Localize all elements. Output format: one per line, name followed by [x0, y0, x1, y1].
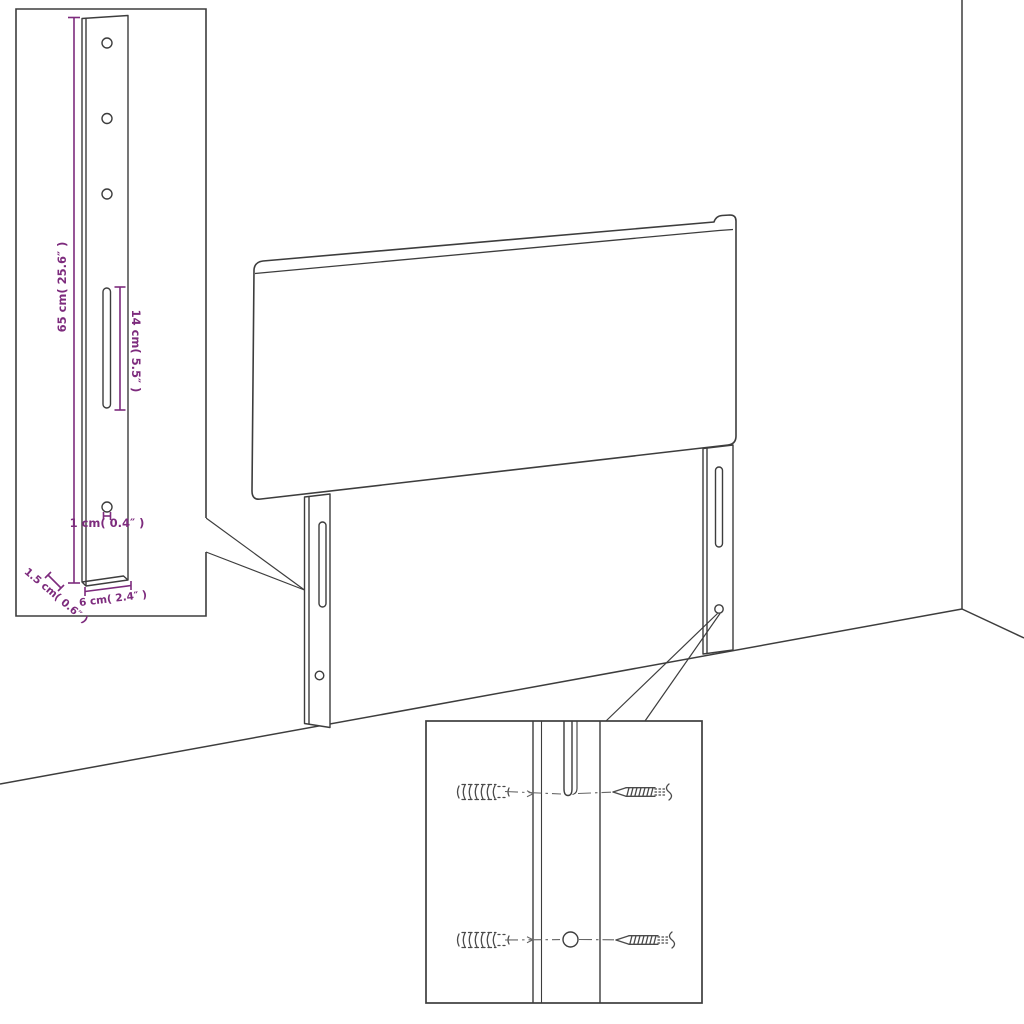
inset-screw-hole-2	[102, 114, 112, 124]
leg-detail-inset: 65 cm( 25.6″ ) 14 cm( 5.5″ ) 1 cm( 0.4″ …	[16, 9, 206, 626]
callout-line-upper	[206, 518, 305, 590]
fixing-detail-inset	[426, 721, 702, 1003]
floor-line-right	[962, 609, 1024, 638]
right-leg-hole	[715, 605, 723, 613]
assembly-diagram: 65 cm( 25.6″ ) 14 cm( 5.5″ ) 1 cm( 0.4″ …	[0, 0, 1024, 1024]
inset-adjustment-slot	[103, 288, 111, 408]
headboard-panel	[252, 215, 736, 499]
label-leg-height: 65 cm( 25.6″ )	[55, 242, 69, 333]
left-leg-hole	[315, 671, 324, 680]
inset-bottom-hole	[102, 502, 112, 512]
label-slot-length: 14 cm( 5.5″ )	[129, 310, 143, 393]
callout-line-right	[645, 614, 720, 722]
label-hole-size: 1 cm( 0.4″ )	[70, 516, 145, 530]
callout-line-left	[606, 614, 718, 722]
left-leg-slot	[319, 522, 326, 607]
leg-inset-callout	[206, 518, 305, 590]
diagram-canvas: 65 cm( 25.6″ ) 14 cm( 5.5″ ) 1 cm( 0.4″ …	[0, 0, 1024, 1024]
left-leg	[305, 494, 331, 728]
inset-hole	[563, 932, 578, 947]
inset-screw-hole-1	[102, 38, 112, 48]
callout-line-lower	[206, 552, 305, 590]
inset-screw-hole-3	[102, 189, 112, 199]
right-leg-slot	[716, 467, 723, 547]
headboard-outline	[252, 215, 736, 499]
